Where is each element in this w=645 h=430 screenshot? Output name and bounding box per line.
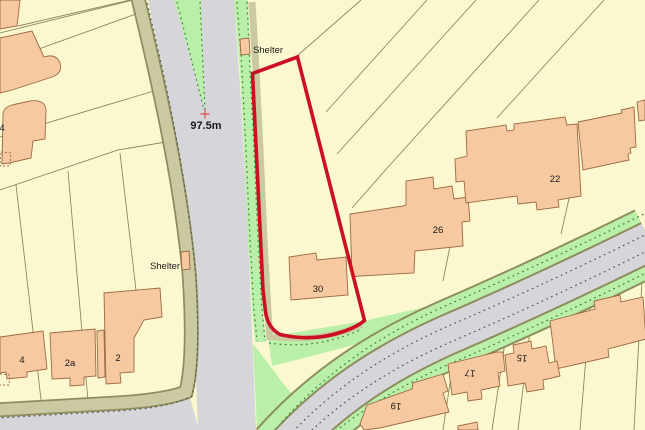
house-19-label: 19 <box>390 399 402 411</box>
house-2a-label: 2a <box>65 358 76 369</box>
house-4-label: 4 <box>19 355 24 366</box>
building-top-left-corner <box>0 0 20 29</box>
map-canvas: Shelter 97.5m Shelter 4 4 2a 2 30 26 22 … <box>0 0 645 430</box>
building-house-22 <box>455 117 581 210</box>
house-2-label: 2 <box>115 353 120 364</box>
house-17-label: 17 <box>464 366 476 378</box>
house-15-label: 15 <box>516 351 528 363</box>
shelter-left-label: Shelter <box>150 261 180 272</box>
bus-shelter-left <box>181 251 190 270</box>
shelter-top-label: Shelter <box>253 45 283 56</box>
site-plan-map: Shelter 97.5m Shelter 4 4 2a 2 30 26 22 … <box>0 0 645 430</box>
house-4-edge-label: 4 <box>0 123 5 134</box>
building-link <box>97 330 105 378</box>
house-30-label: 30 <box>313 284 324 295</box>
house-26-label: 26 <box>433 225 444 236</box>
bus-shelter-top <box>240 38 250 55</box>
spot-height-label: 97.5m <box>190 120 221 132</box>
house-22-label: 22 <box>550 174 561 185</box>
